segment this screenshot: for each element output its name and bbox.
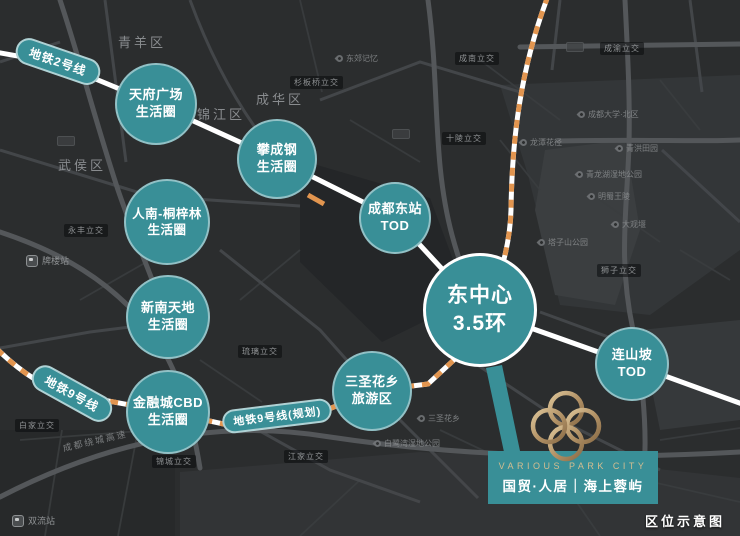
- circle-lianshanpo: 连山坡TOD: [595, 327, 669, 401]
- circle-east-center: 东中心3.5环: [423, 253, 537, 367]
- circle-tianfu-square: 天府广场生活圈: [115, 63, 197, 145]
- interchange-baijia: 白家立交: [15, 419, 59, 432]
- road-number-badge: [392, 129, 410, 139]
- poi-chengdu-university: 成都大学·北区: [578, 109, 639, 120]
- map-pin-icon: [611, 220, 621, 230]
- circle-sansheng-huaxiang: 三圣花乡旅游区: [332, 351, 412, 431]
- interchange-jiangjia: 江家立交: [284, 450, 328, 463]
- map-pin-icon: [519, 138, 529, 148]
- poi-qinglonghu-park: 青龙湖湿地公园: [576, 169, 642, 180]
- interchange-jincheng: 锦城立交: [152, 455, 196, 468]
- poi-mingshu-wangling: 明蜀王陵: [588, 191, 630, 202]
- interchange-chengyu: 成渝立交: [600, 42, 644, 55]
- poi-tazishan-park: 塔子山公园: [538, 237, 588, 248]
- map-pin-icon: [587, 192, 597, 202]
- circle-panchenggang: 攀成钢生活圈: [237, 119, 317, 199]
- circle-financial-city-cbd: 金融城CBD生活圈: [126, 370, 210, 454]
- circle-xinnan-tiandi: 新南天地生活圈: [126, 275, 210, 359]
- district-jinjiang: 锦江区: [197, 104, 245, 123]
- map-pin-icon: [615, 144, 625, 154]
- station-pailou: 牌楼站: [26, 254, 69, 267]
- map-pin-icon: [537, 238, 547, 248]
- location-map: 天府广场生活圈 攀成钢生活圈 人南-桐梓林生活圈 新南天地生活圈 金融城CBD生…: [0, 0, 740, 536]
- poi-sansheng-huaxiang: 三圣花乡: [418, 413, 460, 424]
- interchange-shizi: 狮子立交: [597, 264, 641, 277]
- station-shuangliu: 双流站: [12, 514, 55, 527]
- interchange-liuli: 琉璃立交: [238, 345, 282, 358]
- circle-chengdu-east-station: 成都东站TOD: [359, 182, 431, 254]
- train-station-icon: [26, 255, 38, 267]
- interchange-yongfeng: 永丰立交: [64, 224, 108, 237]
- district-chenghua: 成华区: [256, 89, 304, 108]
- district-qingyang: 青羊区: [118, 32, 166, 51]
- callout-wedge: [486, 365, 520, 452]
- district-wuhou: 武侯区: [58, 155, 106, 174]
- poi-bailuwan-wetland: 白鹭湾湿地公园: [374, 438, 440, 449]
- map-pin-icon: [577, 110, 587, 120]
- map-caption: 区位示意图: [645, 511, 725, 530]
- circle-rennan-tongzilin: 人南-桐梓林生活圈: [124, 179, 210, 265]
- road-number-badge: [566, 42, 584, 52]
- poi-daguanyan: 大观堰: [612, 219, 646, 230]
- brand-name-cn: 国贸·人居｜海上蓉屿: [503, 475, 644, 495]
- map-pin-icon: [575, 170, 585, 180]
- road-number-badge: [57, 136, 75, 146]
- interchange-chengnan: 成南立交: [455, 52, 499, 65]
- interchange-shanbanqiao: 杉板桥立交: [290, 76, 343, 89]
- map-pin-icon: [373, 439, 383, 449]
- poi-qinghong-tianyuan: 青洪田园: [616, 143, 658, 154]
- interchange-shiling: 十陵立交: [442, 132, 486, 145]
- poi-dongjiaojiyi: 东郊记忆: [336, 53, 378, 64]
- map-pin-icon: [417, 414, 427, 424]
- quatrefoil-logo-icon: [528, 388, 604, 464]
- poi-longtan-huajing: 龙潭花径: [520, 137, 562, 148]
- train-station-icon: [12, 515, 24, 527]
- map-pin-icon: [335, 54, 345, 64]
